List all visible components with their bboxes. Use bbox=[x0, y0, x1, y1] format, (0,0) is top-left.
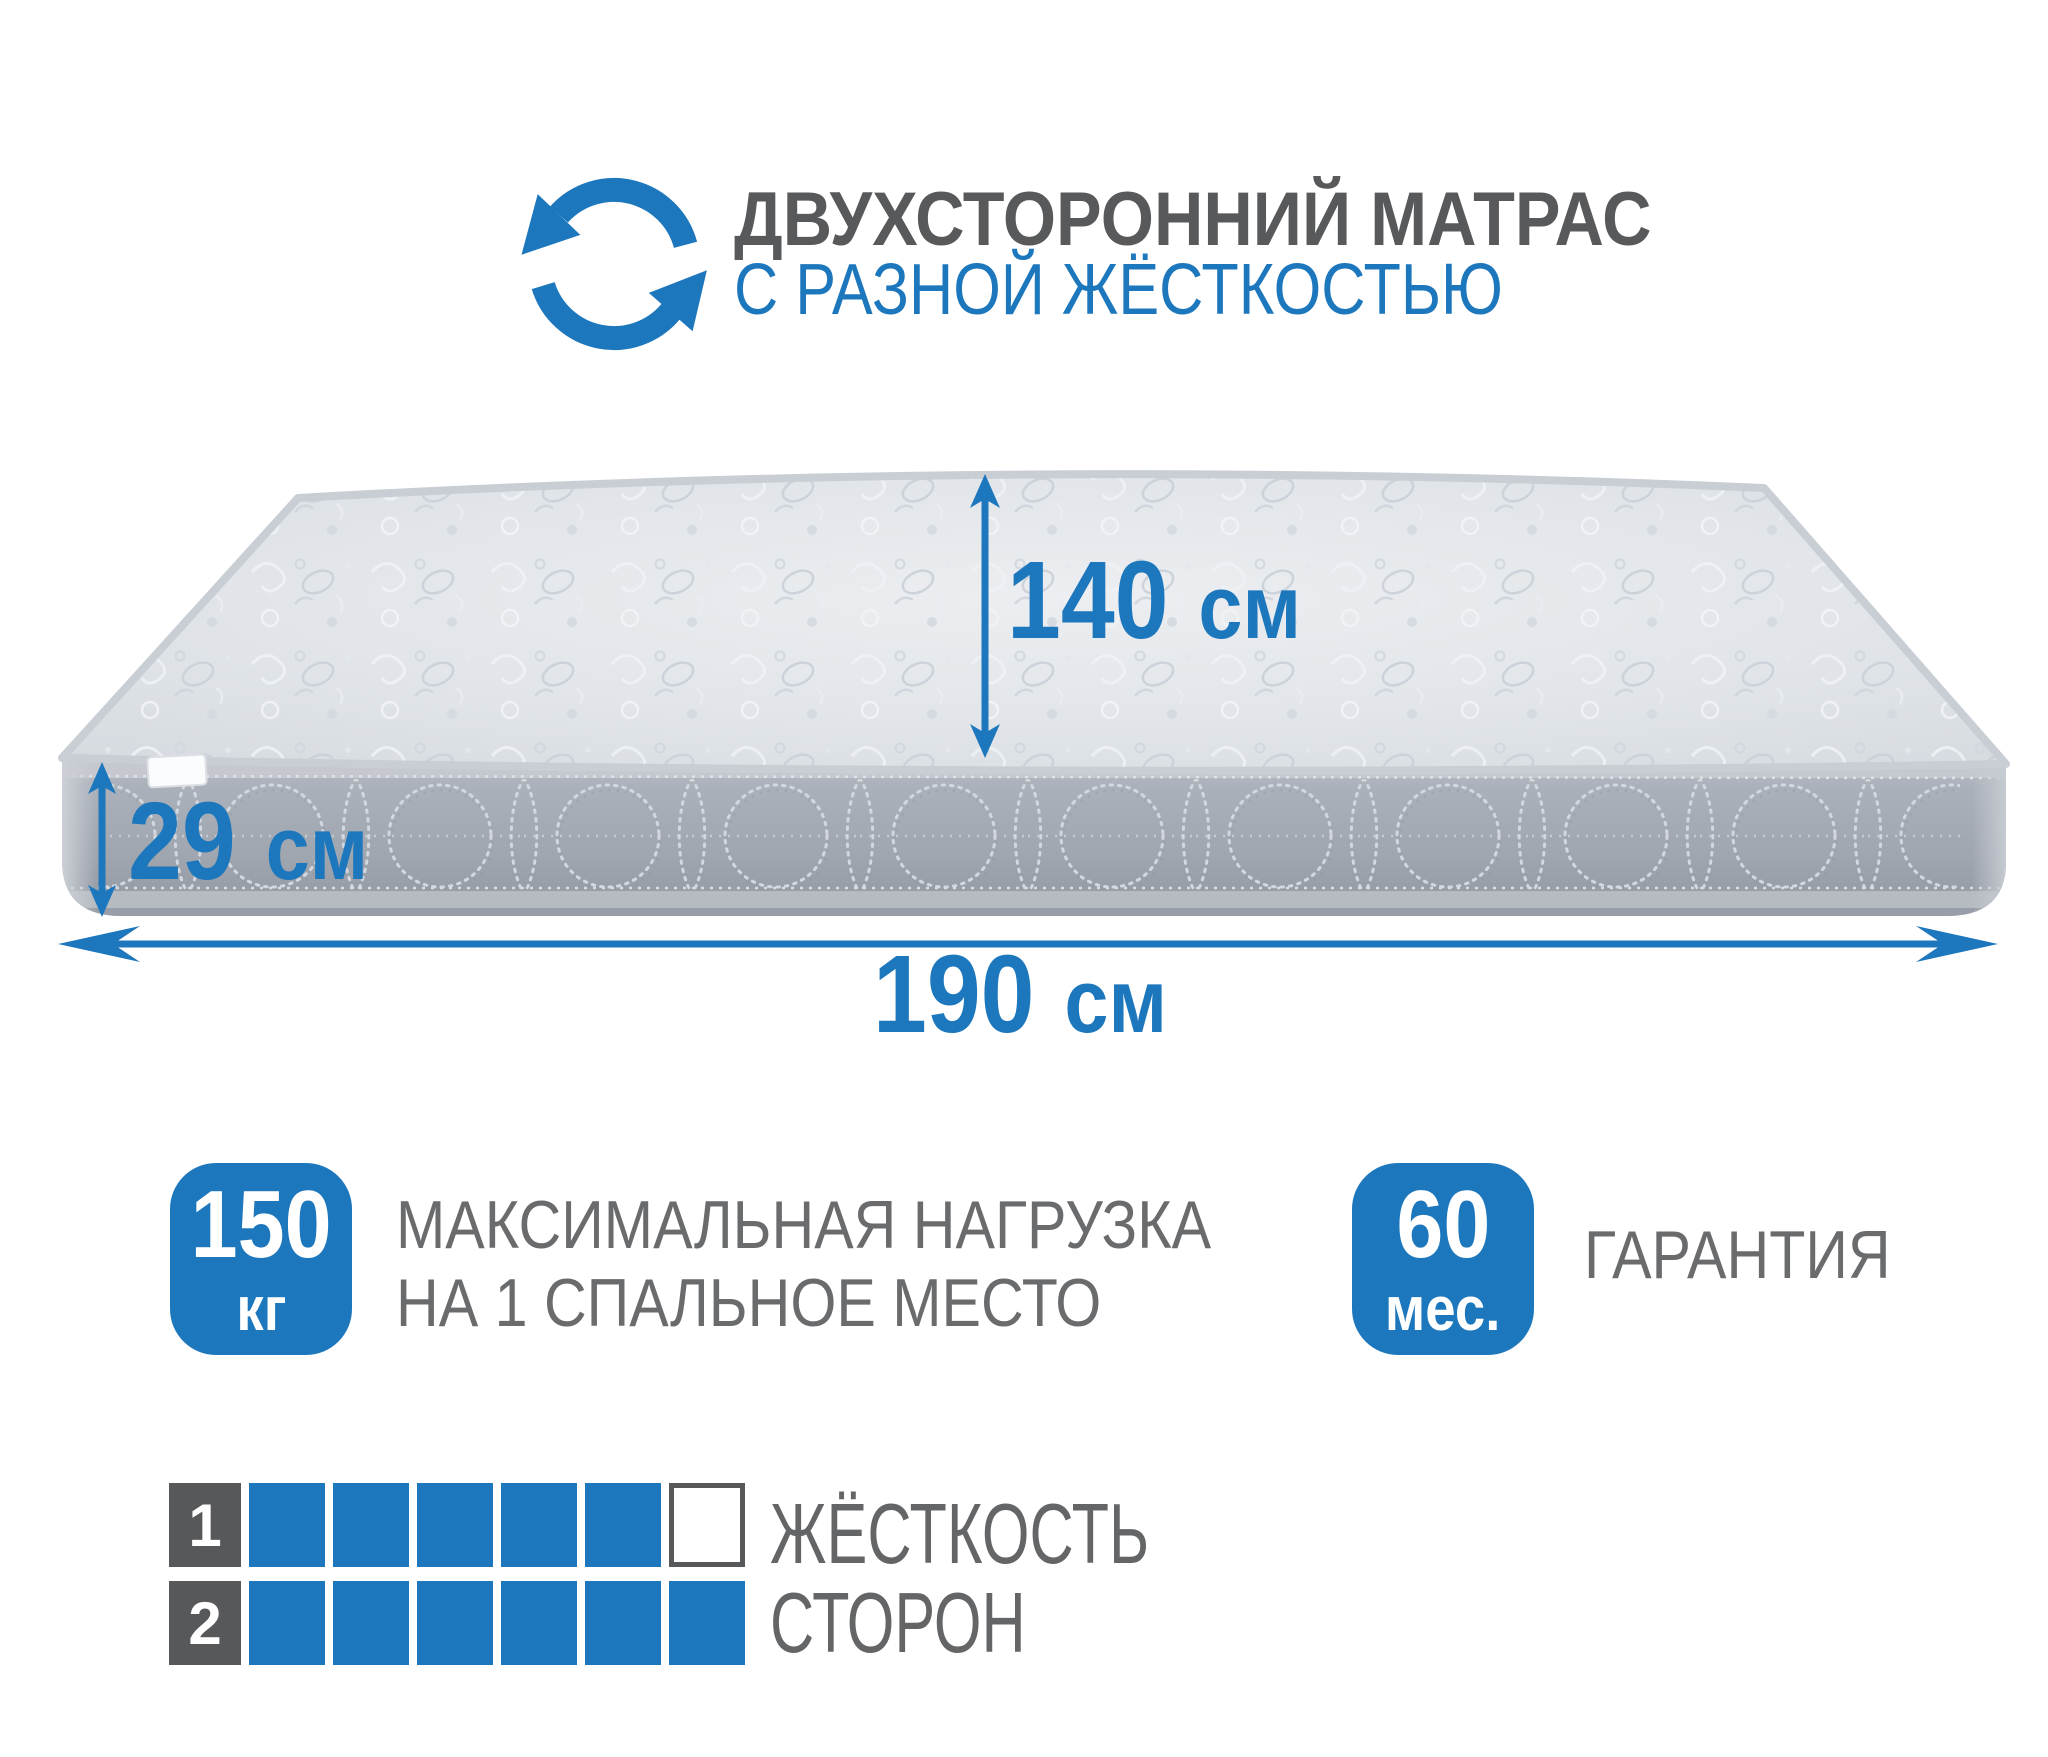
width-dimension-label: 140 см bbox=[1007, 546, 1301, 656]
height-value: 29 bbox=[128, 787, 236, 897]
firmness-grid: 12 bbox=[169, 1483, 745, 1679]
firmness-cell-filled bbox=[417, 1483, 493, 1567]
warranty-value: 60 bbox=[1396, 1177, 1490, 1273]
firmness-label: ЖЁСТКОСТЬ СТОРОН bbox=[770, 1490, 1149, 1668]
width-value: 140 bbox=[1007, 546, 1169, 656]
firmness-cell-filled bbox=[249, 1581, 325, 1665]
max-load-value: 150 bbox=[191, 1177, 332, 1273]
firmness-cell-filled bbox=[501, 1483, 577, 1567]
max-load-label: МАКСИМАЛЬНАЯ НАГРУЗКА НА 1 СПАЛЬНОЕ МЕСТ… bbox=[396, 1186, 1211, 1342]
firmness-row-index: 1 bbox=[169, 1483, 241, 1567]
firmness-row: 1 bbox=[169, 1483, 745, 1567]
max-load-label-line1: МАКСИМАЛЬНАЯ НАГРУЗКА bbox=[396, 1186, 1211, 1264]
warranty-unit: мес. bbox=[1385, 1279, 1501, 1341]
firmness-cell-filled bbox=[585, 1483, 661, 1567]
max-load-unit: кг bbox=[236, 1279, 286, 1341]
length-unit: см bbox=[1064, 957, 1167, 1047]
firmness-cell-filled bbox=[333, 1483, 409, 1567]
firmness-cell-empty bbox=[669, 1483, 745, 1567]
firmness-cell-filled bbox=[669, 1581, 745, 1665]
max-load-badge: 150 кг bbox=[170, 1163, 352, 1355]
length-dimension-label: 190 см bbox=[873, 940, 1167, 1050]
firmness-row: 2 bbox=[169, 1581, 745, 1665]
firmness-cell-filled bbox=[333, 1581, 409, 1665]
width-unit: см bbox=[1198, 563, 1301, 653]
firmness-row-index: 2 bbox=[169, 1581, 241, 1665]
firmness-label-line1: ЖЁСТКОСТЬ bbox=[770, 1490, 1149, 1579]
height-unit: см bbox=[266, 804, 369, 894]
max-load-label-line2: НА 1 СПАЛЬНОЕ МЕСТО bbox=[396, 1264, 1211, 1342]
length-value: 190 bbox=[873, 940, 1035, 1050]
infographic-canvas: ДВУХСТОРОННИЙ МАТРАС С РАЗНОЙ ЖЁСТКОСТЬЮ bbox=[0, 0, 2048, 1757]
firmness-cell-filled bbox=[501, 1581, 577, 1665]
warranty-label: ГАРАНТИЯ bbox=[1584, 1216, 1891, 1294]
height-dimension-label: 29 см bbox=[128, 787, 368, 897]
warranty-badge: 60 мес. bbox=[1352, 1163, 1534, 1355]
firmness-cell-filled bbox=[249, 1483, 325, 1567]
firmness-cell-filled bbox=[585, 1581, 661, 1665]
firmness-cell-filled bbox=[417, 1581, 493, 1665]
firmness-label-line2: СТОРОН bbox=[770, 1579, 1149, 1668]
